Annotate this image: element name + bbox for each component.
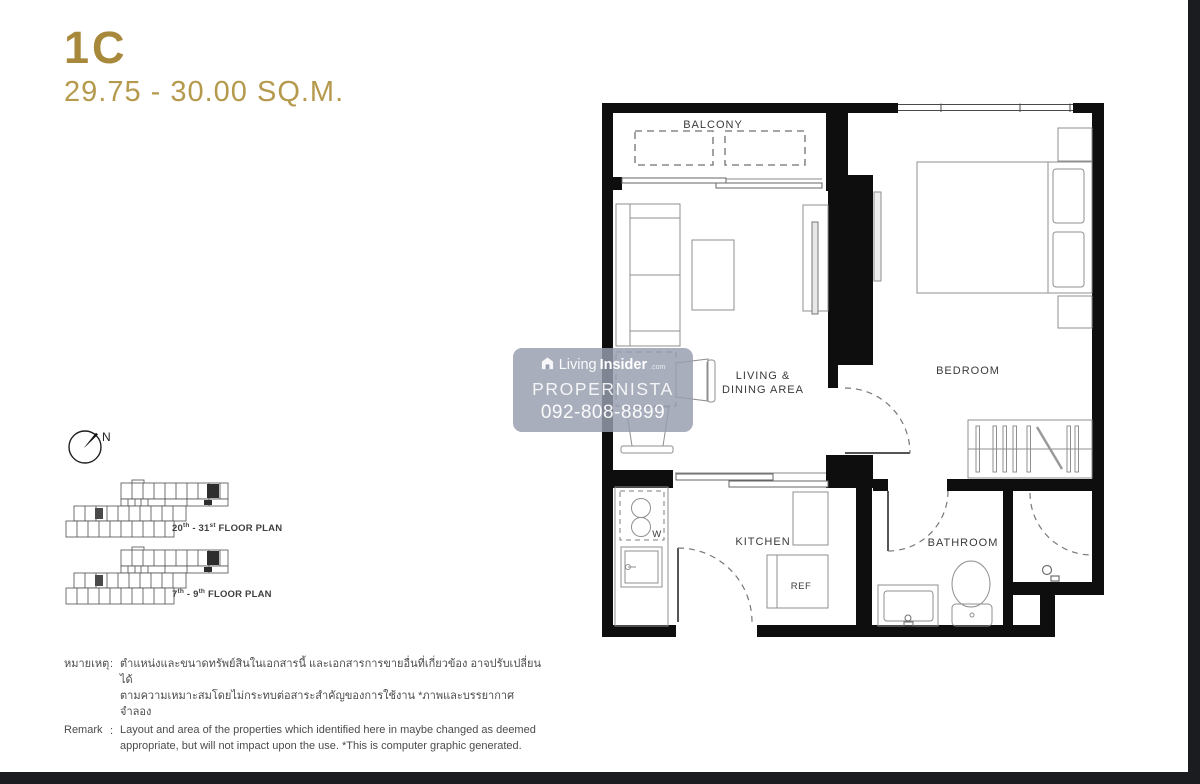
watermark-phone-number: 092-808-8899 (541, 402, 665, 424)
nightstand-bottom (1058, 296, 1092, 328)
screenshot-right-edge (1188, 0, 1200, 784)
unit-area-range: 29.75 - 30.00 SQ.M. (64, 76, 344, 109)
floor-plan-page: 1C 29.75 - 30.00 SQ.M. N (0, 0, 1200, 784)
balcony-ac-pads (635, 131, 805, 165)
remark-row-english: Remark : Layout and area of the properti… (64, 723, 544, 754)
key-plan-label-20-31: 20th - 31st FLOOR PLAN (172, 522, 282, 534)
living-label-line2: DINING AREA (722, 384, 804, 396)
watermark-agency-name: PROPERNISTA (532, 379, 674, 400)
unit-name-title: 1C (64, 22, 128, 74)
kitchen-counter-right (793, 492, 828, 545)
screenshot-bottom-edge (0, 772, 1200, 784)
bedroom-window (898, 103, 1073, 113)
kitchen-counter (615, 487, 668, 626)
coffee-table (692, 240, 734, 310)
north-arrow: N (64, 424, 124, 476)
remark-row-thai: หมายเหตุ : ตำแหน่งและขนาดทรัพย์สินในเอกส… (64, 656, 544, 720)
wardrobe (968, 420, 1092, 478)
bedroom-label: BEDROOM (936, 365, 1000, 377)
watermark-badge: Living Insider .com PROPERNISTA 092-808-… (513, 348, 693, 432)
refrigerator-label: REF (791, 581, 812, 592)
bathroom-sink (878, 585, 938, 626)
watermark-brand-living: Living (559, 358, 597, 372)
kitchen-sliding-door (675, 473, 828, 487)
remark-label-english: Remark (64, 723, 110, 739)
bed (917, 162, 1092, 293)
watermark-brand-insider: Insider (600, 358, 648, 372)
tv-cabinet (803, 205, 828, 314)
remark-text-thai: ตำแหน่งและขนาดทรัพย์สินในเอกสารนี้ และเอ… (120, 656, 544, 720)
bathroom-label: BATHROOM (928, 537, 999, 549)
watermark-brand-tld: .com (650, 361, 665, 375)
balcony-label: BALCONY (683, 119, 743, 131)
nightstand-top (1058, 128, 1092, 161)
compass-needle-icon (84, 433, 98, 448)
kitchen-label: KITCHEN (735, 536, 790, 548)
living-insider-logo-icon (541, 357, 554, 370)
remark-block: หมายเหตุ : ตำแหน่งและขนาดทรัพย์สินในเอกส… (64, 656, 544, 754)
toilet (952, 561, 992, 626)
shower-drain-icon (1043, 566, 1060, 582)
remark-label-thai: หมายเหตุ (64, 656, 110, 672)
balcony-sliding-door (622, 178, 822, 188)
bedroom-wall-panel (874, 192, 881, 281)
sofa (616, 204, 680, 346)
living-label-line1: LIVING & (736, 370, 790, 382)
compass-north-label: N (102, 430, 111, 444)
key-plan-label-7-9: 7th - 9th FLOOR PLAN (172, 588, 272, 600)
remark-text-english: Layout and area of the properties which … (120, 723, 544, 754)
washer-label: W (652, 529, 661, 540)
watermark-brand: Living Insider .com (541, 356, 666, 375)
